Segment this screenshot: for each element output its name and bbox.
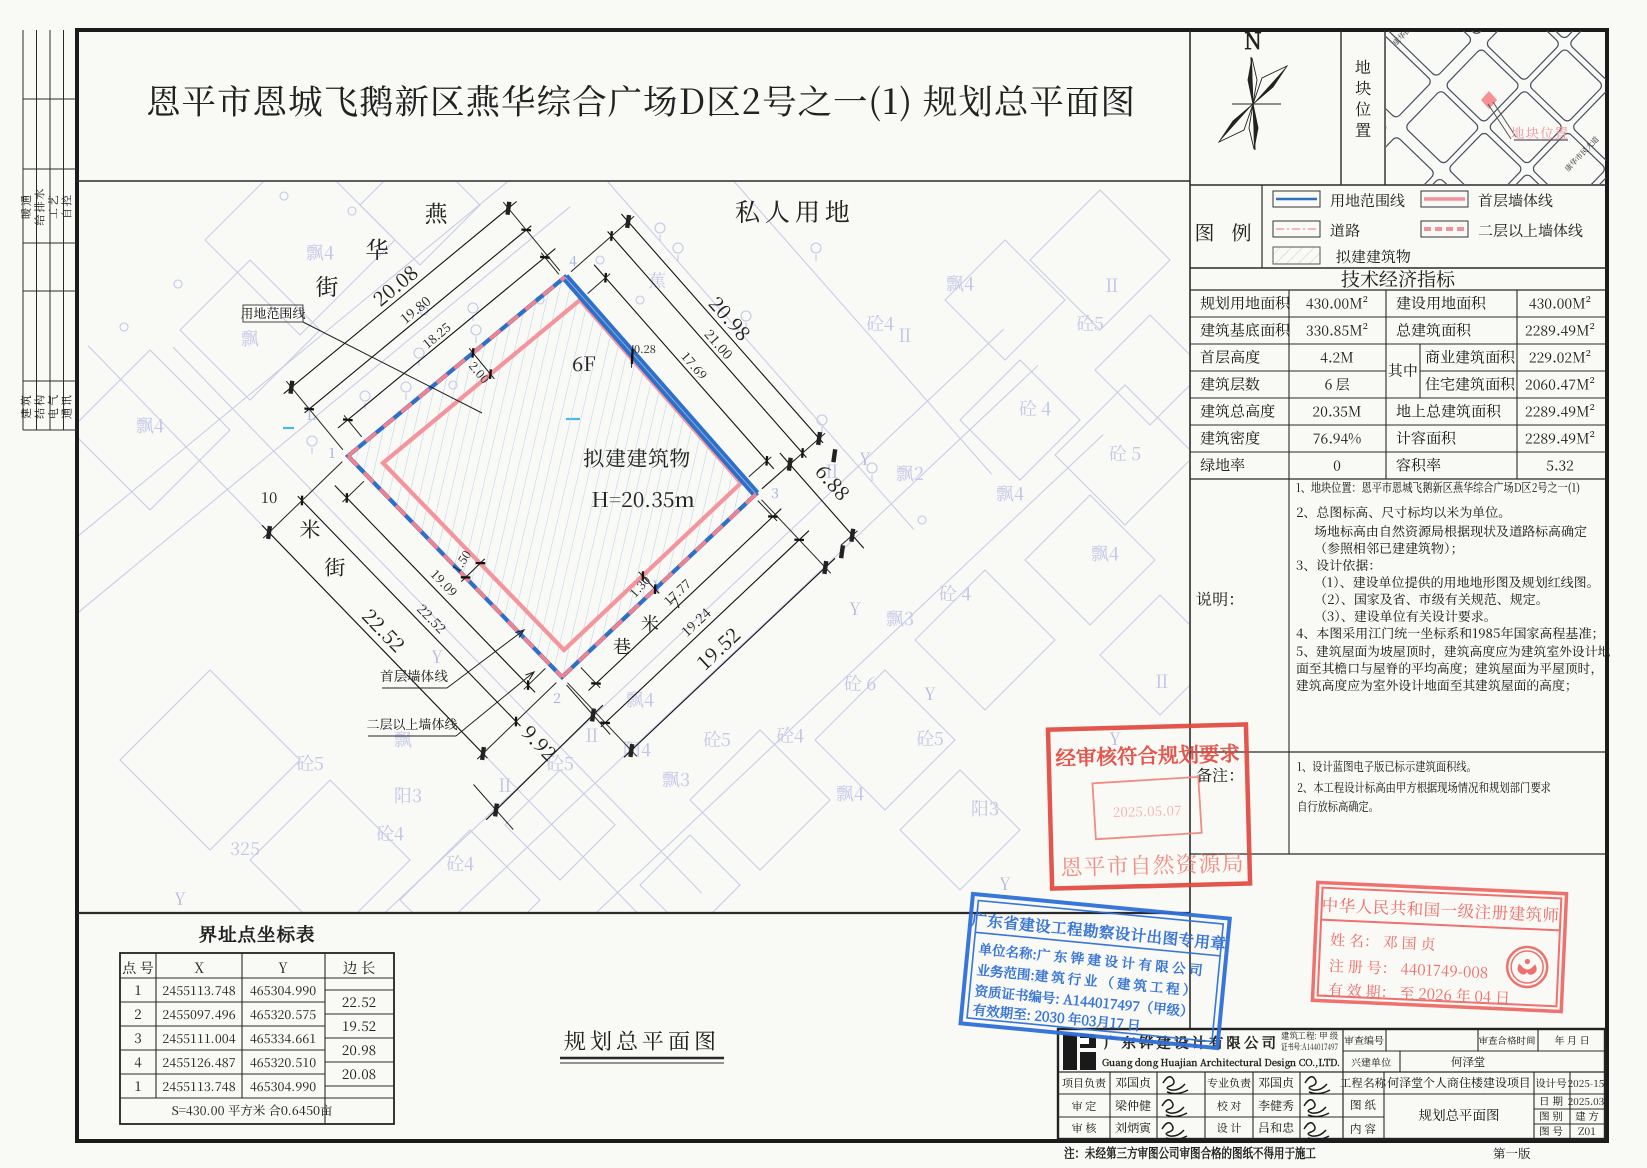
svg-text:广东铧建设计有限公司: 广东铧建设计有限公司 [1103,1032,1279,1053]
svg-text:砼 4: 砼 4 [1019,395,1052,421]
svg-text:砼 4: 砼 4 [939,580,972,606]
svg-text:说明：: 说明： [1196,587,1244,610]
svg-text:2: 2 [553,688,561,708]
svg-text:飘3: 飘3 [662,766,690,792]
svg-text:阳3: 阳3 [394,782,422,808]
svg-text:置: 置 [1355,118,1371,141]
svg-text:2、总图标高、尺寸标均以米为单位。: 2、总图标高、尺寸标均以米为单位。 [1296,502,1511,521]
svg-text:规划总平面图: 规划总平面图 [564,1025,720,1056]
svg-text:20.35M: 20.35M [1312,402,1361,422]
svg-text:其中: 其中 [1388,360,1418,381]
svg-text:块: 块 [1355,76,1371,99]
svg-text:何泽堂: 何泽堂 [1451,1054,1486,1070]
svg-text:2025.05.07: 2025.05.07 [1113,799,1182,821]
svg-text:砼4: 砼4 [866,310,894,336]
svg-text:1、设计蓝图电子版已标示建筑面积线。: 1、设计蓝图电子版已标示建筑面积线。 [1297,757,1477,775]
svg-text:465304.990: 465304.990 [250,981,316,999]
svg-text:专业负责: 专业负责 [1207,1075,1251,1091]
svg-text:砼4: 砼4 [776,722,804,748]
svg-text:第一版: 第一版 [1493,1144,1531,1162]
svg-text:430.00M²: 430.00M² [1529,294,1592,314]
svg-text:砼5: 砼5 [916,725,944,751]
svg-text:0.28: 0.28 [634,341,656,357]
svg-text:自控: 自控 [58,193,74,219]
svg-text:6 层: 6 层 [1324,375,1349,395]
svg-text:点 号: 点 号 [122,958,154,978]
svg-text:总建筑面积: 总建筑面积 [1396,320,1471,341]
svg-text:430.00M²: 430.00M² [1306,294,1369,314]
svg-text:Y: Y [277,958,288,978]
svg-text:2: 2 [134,1003,141,1023]
svg-text:4.2M: 4.2M [1320,348,1354,368]
svg-text:地: 地 [1355,55,1371,78]
svg-text:证书号:A144017497: 证书号:A144017497 [1281,1040,1338,1053]
svg-text:229.02M²: 229.02M² [1529,348,1592,368]
svg-text:Y: Y [999,870,1011,895]
svg-text:地上总建筑面积: 地上总建筑面积 [1396,401,1501,422]
svg-text:技术经济指标: 技术经济指标 [1341,265,1455,292]
svg-text:465334.661: 465334.661 [250,1029,316,1047]
svg-text:位: 位 [1355,97,1371,120]
svg-text:465304.990: 465304.990 [250,1077,316,1095]
svg-text:注：未经第三方审图公司审图合格的图纸不得用于施工: 注：未经第三方审图公司审图合格的图纸不得用于施工 [1064,1142,1316,1162]
svg-text:用地范围线: 用地范围线 [240,303,305,322]
svg-text:何泽堂个人商住楼建设项目: 何泽堂个人商住楼建设项目 [1387,1074,1531,1091]
svg-text:Y: Y [924,680,936,705]
svg-text:年 月 日: 年 月 日 [1554,1032,1589,1047]
svg-text:自行放标高确定。: 自行放标高确定。 [1297,797,1379,815]
svg-text:刘炳寅: 刘炳寅 [1115,1119,1151,1136]
svg-text:1: 1 [134,1075,141,1095]
svg-text:Guang dong Huajian Architectur: Guang dong Huajian Architectural Design … [1101,1055,1340,1069]
svg-text:规划用地面积: 规划用地面积 [1200,293,1290,314]
svg-text:砼4: 砼4 [376,820,404,846]
svg-text:图 别: 图 别 [1539,1109,1563,1124]
svg-text:1: 1 [328,443,336,463]
svg-text:2455111.004: 2455111.004 [162,1029,235,1047]
svg-text:2455113.748: 2455113.748 [162,1077,235,1095]
svg-text:阳4: 阳4 [623,736,651,762]
svg-text:项目负责: 项目负责 [1062,1075,1106,1091]
svg-text:设计号: 设计号 [1535,1076,1567,1091]
svg-text:Y: Y [849,595,861,620]
svg-text:界址点坐标表: 界址点坐标表 [198,921,315,947]
svg-text:2455126.487: 2455126.487 [162,1053,235,1071]
svg-text:Y: Y [859,445,871,470]
svg-text:2289.49M²: 2289.49M² [1525,321,1596,341]
svg-text:建筑高度应为室外设计地面至其建筑屋面的高度；: 建筑高度应为室外设计地面至其建筑屋面的高度； [1296,675,1578,694]
svg-text:2025.03: 2025.03 [1568,1093,1604,1108]
svg-text:飘4: 飘4 [306,239,334,265]
svg-text:容积率: 容积率 [1396,455,1441,476]
svg-text:飘4: 飘4 [136,412,164,438]
svg-text:地块位置: 地块位置 [1511,122,1569,142]
svg-text:2060.47M²: 2060.47M² [1525,375,1596,395]
svg-text:X: X [194,958,204,978]
svg-text:日 期: 日 期 [1539,1094,1563,1109]
svg-text:巷: 巷 [613,633,631,659]
svg-text:审 核: 审 核 [1072,1120,1097,1136]
svg-text:Y: Y [174,885,186,910]
svg-text:H=20.35m: H=20.35m [591,484,695,514]
svg-text:邓国贞: 邓国贞 [1115,1074,1151,1091]
svg-text:2、本工程设计标高由甲方根据现场情况和规划部门要求: 2、本工程设计标高由甲方根据现场情况和规划部门要求 [1297,778,1551,796]
svg-text:兴建单位: 兴建单位 [1351,1054,1392,1069]
svg-text:图 号: 图 号 [1539,1124,1563,1139]
svg-text:恩平市自然资源局: 恩平市自然资源局 [1060,847,1245,883]
svg-text:米: 米 [300,514,321,544]
svg-text:465320.575: 465320.575 [250,1005,316,1023]
svg-text:Ⅱ: Ⅱ [1103,272,1121,298]
svg-text:通讯: 通讯 [58,393,74,419]
svg-text:76.94%: 76.94% [1313,429,1363,449]
svg-text:商业建筑面积: 商业建筑面积 [1425,347,1515,368]
svg-text:4、本图采用江门统一坐标系和1985年国家高程基准；: 4、本图采用江门统一坐标系和1985年国家高程基准； [1296,623,1604,642]
svg-text:1、地块位置：恩平市恩城飞鹅新区燕华综合广场D区2号之一(1: 1、地块位置：恩平市恩城飞鹅新区燕华综合广场D区2号之一(1) [1296,478,1580,496]
svg-text:建筑基底面积: 建筑基底面积 [1199,320,1290,341]
svg-text:吕和忠: 吕和忠 [1258,1119,1294,1136]
svg-text:街: 街 [325,552,346,582]
svg-text:砼 6: 砼 6 [844,670,877,696]
svg-text:10: 10 [261,487,278,508]
svg-text:内 容: 内 容 [1350,1121,1376,1137]
svg-text:330.85M²: 330.85M² [1306,321,1369,341]
svg-text:首层墙体线: 首层墙体线 [380,665,448,685]
svg-text:规划总平面图: 规划总平面图 [1419,1104,1500,1124]
svg-text:燕: 燕 [425,196,448,229]
svg-text:2455113.748: 2455113.748 [162,981,235,999]
svg-text:邓国贞: 邓国贞 [1258,1074,1294,1091]
svg-text:3: 3 [771,483,779,503]
svg-text:建筑层数: 建筑层数 [1199,374,1260,395]
svg-text:拟建建筑物: 拟建建筑物 [1336,246,1411,267]
svg-text:李健秀: 李健秀 [1258,1097,1294,1114]
svg-text:4: 4 [134,1051,142,1071]
svg-text:首层高度: 首层高度 [1200,347,1260,368]
svg-text:1: 1 [134,979,141,999]
svg-text:20.98: 20.98 [342,1039,376,1059]
svg-text:2289.49M²: 2289.49M² [1525,429,1596,449]
svg-text:5.32: 5.32 [1546,456,1574,476]
svg-text:6F: 6F [572,348,596,377]
svg-text:Ⅱ: Ⅱ [1153,668,1171,694]
svg-text:飘3: 飘3 [886,605,914,631]
svg-text:阳3: 阳3 [971,795,999,821]
svg-text:经审核符合规划要求: 经审核符合规划要求 [1055,737,1240,772]
svg-text:工程名称: 工程名称 [1340,1075,1386,1091]
svg-text:建筑密度: 建筑密度 [1199,428,1260,449]
svg-text:Ⅱ: Ⅱ [583,722,601,748]
svg-text:街: 街 [316,269,339,302]
svg-text:图 纸: 图 纸 [1350,1097,1376,1113]
svg-text:计容面积: 计容面积 [1396,428,1456,449]
svg-text:审查合格时间: 审查合格时间 [1477,1033,1535,1047]
svg-text:设 计: 设 计 [1217,1120,1242,1136]
svg-text:砼4: 砼4 [446,850,474,876]
svg-text:拟建建筑物: 拟建建筑物 [583,443,691,473]
svg-text:校 对: 校 对 [1217,1098,1242,1114]
svg-text:20.08: 20.08 [342,1063,376,1083]
svg-text:砼5: 砼5 [703,726,731,752]
svg-text:2025-15: 2025-15 [1568,1075,1605,1090]
svg-text:私人用地: 私人用地 [735,193,855,229]
svg-text:建设用地面积: 建设用地面积 [1395,293,1486,314]
svg-text:22.52: 22.52 [342,991,376,1011]
svg-text:飘4: 飘4 [1091,540,1119,566]
svg-text:边 长: 边 长 [343,957,376,978]
svg-text:2455097.496: 2455097.496 [162,1005,235,1023]
svg-text:465320.510: 465320.510 [250,1053,316,1071]
svg-text:3: 3 [134,1027,141,1047]
svg-text:梁仲健: 梁仲健 [1115,1097,1151,1114]
svg-text:建 方: 建 方 [1575,1109,1599,1124]
svg-text:二层以上墙体线: 二层以上墙体线 [366,714,457,733]
svg-text:飘4: 飘4 [996,480,1024,506]
svg-text:绿地率: 绿地率 [1200,455,1245,476]
svg-text:首层墙体线: 首层墙体线 [1478,190,1553,211]
svg-text:米: 米 [641,610,659,636]
svg-text:325: 325 [230,835,260,861]
svg-text:建筑总高度: 建筑总高度 [1199,401,1275,422]
svg-text:飘2: 飘2 [896,460,924,486]
svg-text:审查编号: 审查编号 [1344,1032,1384,1047]
svg-text:二层以上墙体线: 二层以上墙体线 [1478,220,1583,241]
svg-text:用地范围线: 用地范围线 [1330,190,1405,211]
svg-text:飘4: 飘4 [946,270,974,296]
svg-text:图 例: 图 例 [1194,217,1257,246]
svg-text:Ⅱ: Ⅱ [896,322,914,348]
svg-text:审 定: 审 定 [1072,1098,1097,1114]
svg-text:S=430.00 平方米 合0.6450亩: S=430.00 平方米 合0.6450亩 [171,1101,332,1119]
svg-text:飘: 飘 [241,325,259,351]
svg-text:N: N [1244,25,1262,56]
svg-text:道路: 道路 [1330,220,1360,241]
svg-text:住宅建筑面积: 住宅建筑面积 [1425,374,1515,395]
svg-text:恩平市恩城飞鹅新区燕华综合广场D区2号之一(1) 规划总平面: 恩平市恩城飞鹅新区燕华综合广场D区2号之一(1) 规划总平面图 [146,74,1136,124]
svg-text:砼5: 砼5 [296,750,324,776]
svg-text:Ⅱ: Ⅱ [496,772,514,798]
svg-text:2289.49M²: 2289.49M² [1525,402,1596,422]
svg-text:砼 5: 砼 5 [1109,440,1142,466]
svg-text:0: 0 [1333,456,1341,476]
svg-text:Z01: Z01 [1578,1124,1596,1139]
svg-text:华: 华 [366,232,389,265]
svg-text:飘4: 飘4 [836,780,864,806]
svg-text:砼5: 砼5 [1076,310,1104,336]
svg-text:19.52: 19.52 [342,1015,376,1035]
